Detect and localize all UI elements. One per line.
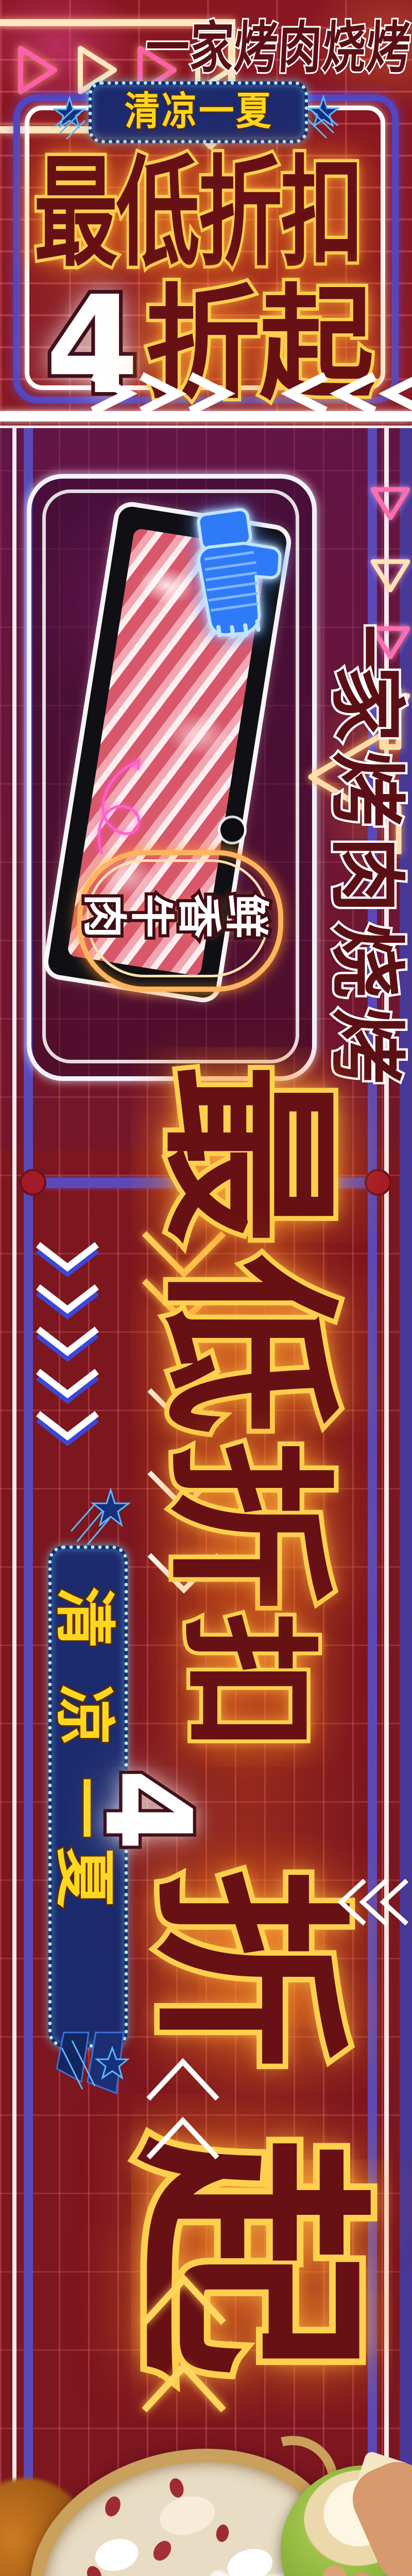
glove-icon [182, 499, 298, 648]
food-photo [0, 2447, 412, 2576]
vbadge-star-top-icon [62, 1480, 139, 1547]
side-brand-char: 肉肉 [329, 837, 405, 913]
chevron-up-white-group [144, 2054, 221, 2162]
banner-pin-top-left [20, 1169, 46, 1196]
pill-char: 鲜鲜 [224, 894, 268, 938]
splash [206, 2567, 299, 2576]
banner-pin-top-right [365, 1169, 391, 1196]
banner-pin-bottom-left [20, 2529, 46, 2555]
tray-corner-dot [220, 818, 244, 842]
red-date [168, 2477, 186, 2499]
section-divider-line [0, 426, 412, 428]
main-title-char: 扣扣 [178, 1613, 317, 1752]
side-brand-char: 烧烧 [329, 922, 405, 998]
vbadge-char: 凉凉 [54, 1685, 115, 1745]
pill-char: 牛牛 [129, 894, 174, 938]
vbadge-char: 夏夏 [54, 1847, 115, 1908]
main-title-char: 最最 [157, 1064, 337, 1244]
squiggle-arrow-icon [61, 753, 159, 861]
chevron-left-white-group [336, 1877, 408, 1927]
brand-title: 一家烤肉烧烤一家烤肉烧烤 [144, 21, 412, 76]
chevron-left-group [278, 372, 412, 415]
finger [348, 2570, 383, 2576]
pot-handle [231, 2419, 354, 2543]
promo-poster: 一家烤肉烧烤一家烤肉烧烤 清凉一夏清凉一夏 最低折扣最低折扣 44 折起折起 [0, 0, 412, 2576]
pill-char: 香香 [177, 894, 221, 938]
dish-pill-label: 肉肉 牛牛 香香 鲜鲜 [92, 887, 259, 945]
discount-number: 44 [88, 1769, 206, 1851]
vbadge-char: 清清 [54, 1587, 115, 1648]
main-suffix-char: 折折 [147, 1868, 348, 2069]
coconut-flesh [298, 2463, 412, 2573]
red-date [84, 2564, 105, 2576]
chevron-up-yellow-group [140, 2271, 228, 2426]
chevron-down-stack [34, 1241, 101, 1452]
splash [242, 2572, 289, 2576]
pill-char: 肉肉 [82, 894, 126, 938]
soup-pot [4, 2417, 368, 2576]
red-date [102, 2494, 123, 2518]
banner-bottom-bar [36, 2537, 376, 2548]
left-rail-white [12, 428, 16, 2556]
section-divider-bar [0, 411, 412, 421]
banner-pin-bottom-right [365, 2529, 391, 2555]
side-brand-char: 烤烤 [329, 751, 405, 827]
main-title-char: 低低 [157, 1255, 337, 1435]
side-brand-char: 家家 [329, 666, 405, 742]
chevron-right-group [89, 372, 238, 415]
offer-title: 最低折扣最低折扣 [34, 154, 363, 273]
coconut [281, 2465, 412, 2576]
finger [320, 2563, 359, 2576]
summer-badge-label: 清凉一夏清凉一夏 [125, 92, 273, 131]
main-title-char: 折折 [162, 1440, 332, 1610]
